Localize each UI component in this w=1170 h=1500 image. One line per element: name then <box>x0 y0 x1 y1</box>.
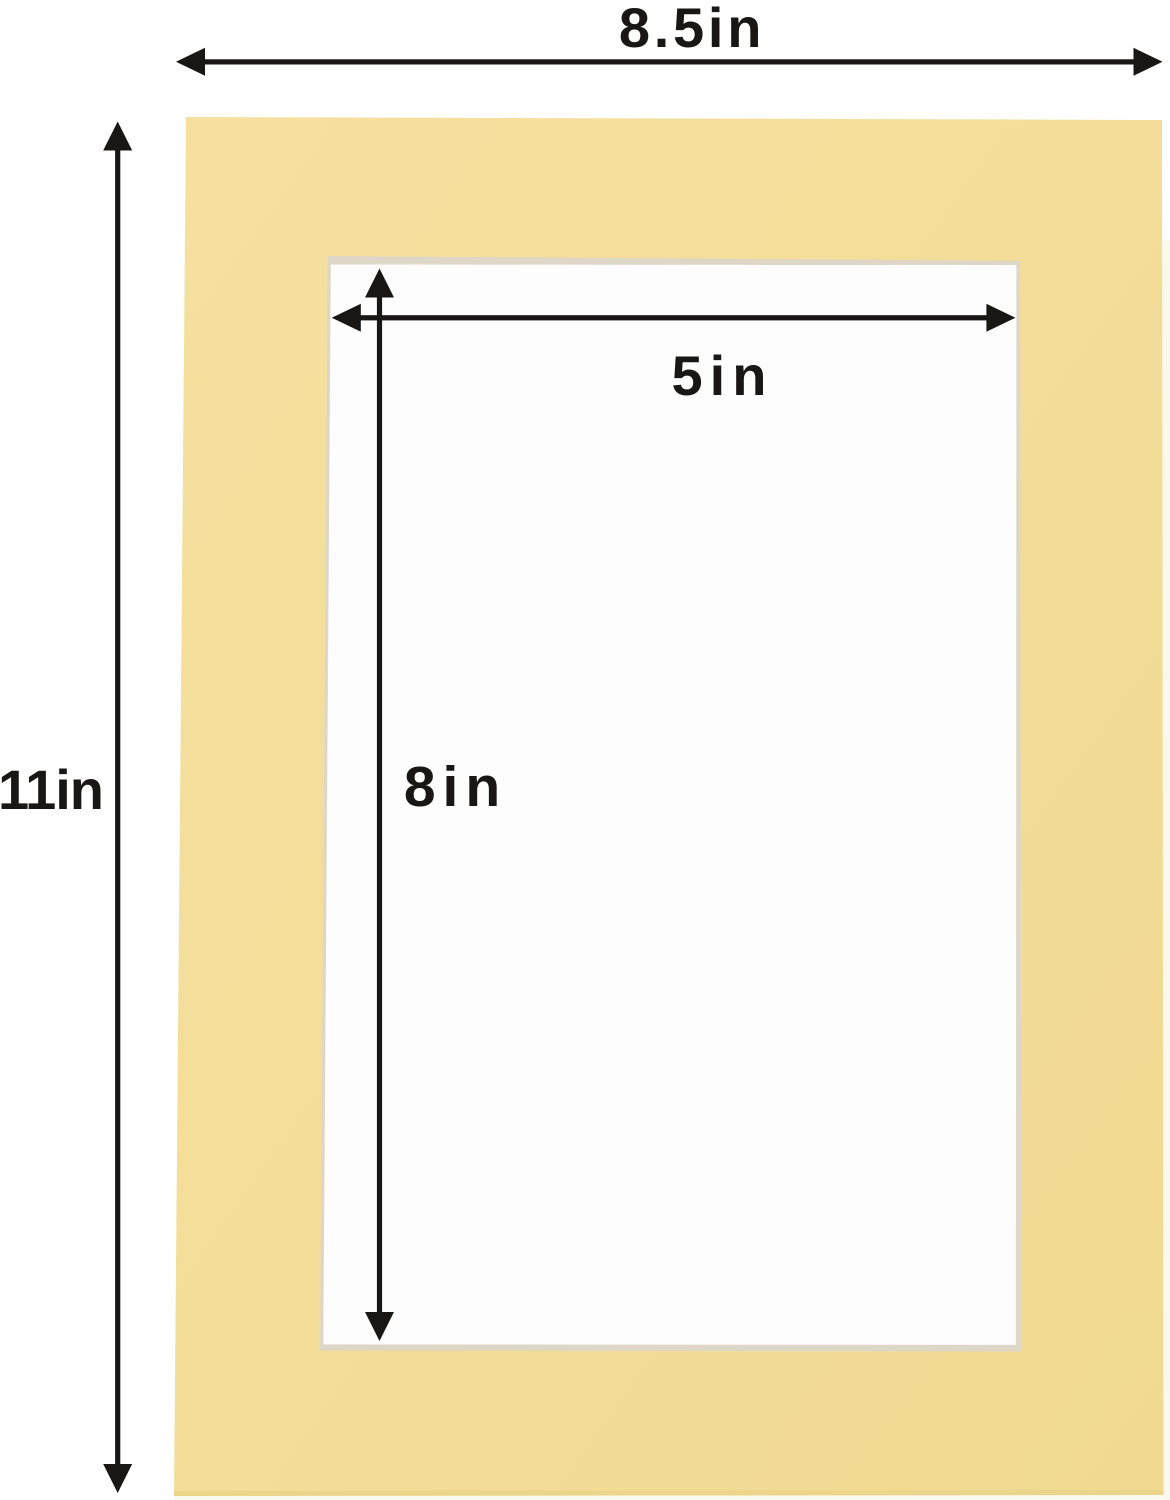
svg-text:8.5in: 8.5in <box>619 0 765 59</box>
svg-text:11in: 11in <box>0 758 103 821</box>
svg-text:5in: 5in <box>672 344 774 407</box>
svg-text:8in: 8in <box>404 755 507 819</box>
